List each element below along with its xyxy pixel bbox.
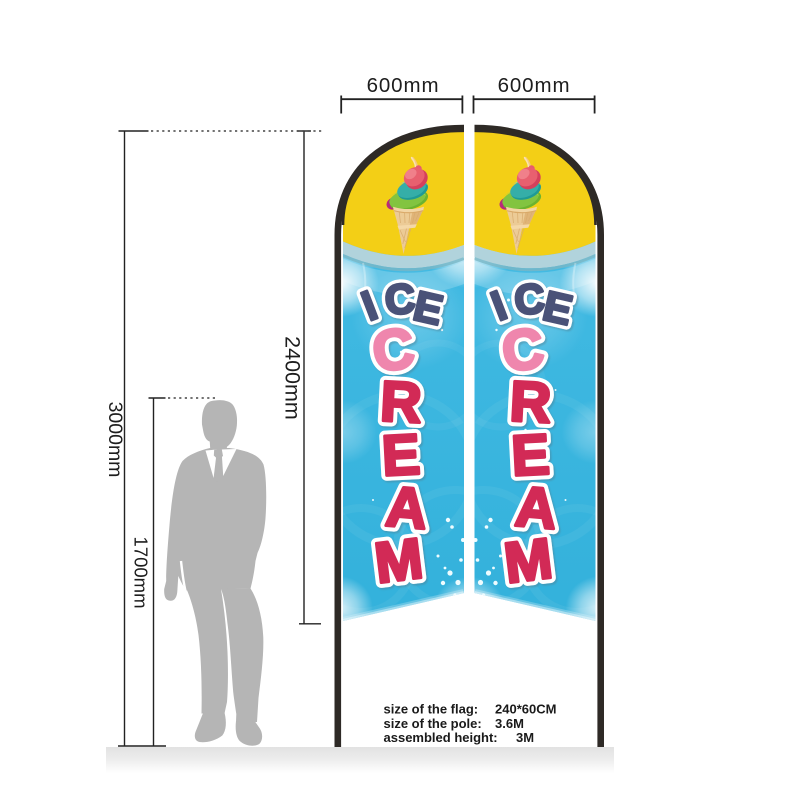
- svg-text:size of the pole:: size of the pole:: [384, 716, 482, 731]
- svg-text:3000mm: 3000mm: [104, 402, 126, 478]
- svg-text:2400mm: 2400mm: [281, 336, 305, 420]
- svg-text:1700mm: 1700mm: [131, 537, 152, 609]
- svg-text:3.6M: 3.6M: [495, 716, 524, 731]
- svg-text:3M: 3M: [516, 730, 534, 745]
- svg-text:size of the flag:: size of the flag:: [384, 702, 479, 717]
- svg-text:600mm: 600mm: [367, 74, 440, 97]
- svg-text:600mm: 600mm: [498, 74, 571, 97]
- svg-text:240*60CM: 240*60CM: [495, 702, 556, 717]
- svg-text:assembled height:: assembled height:: [384, 730, 498, 745]
